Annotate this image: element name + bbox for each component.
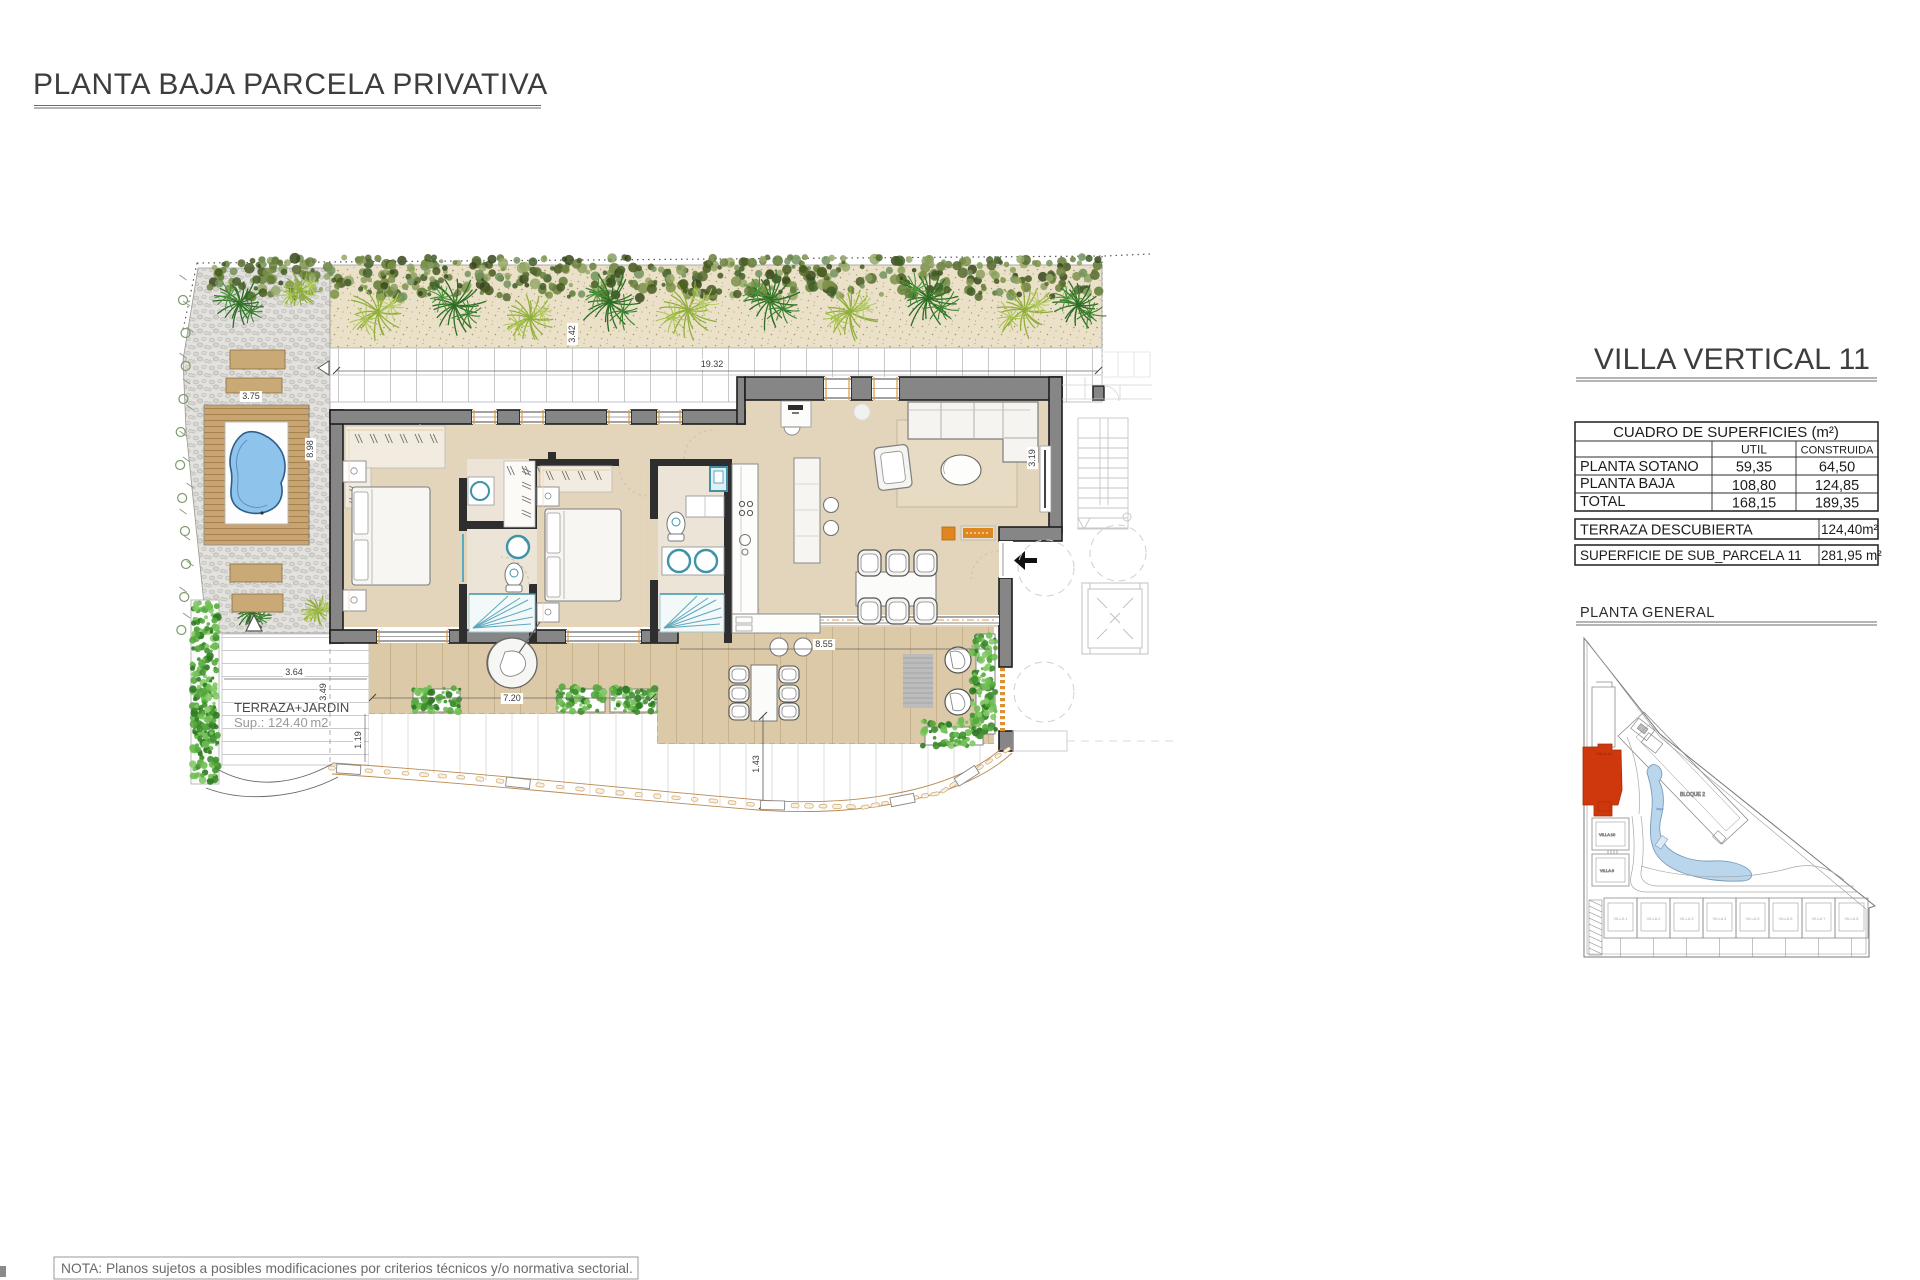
svg-text:3.64: 3.64 — [285, 667, 303, 677]
svg-text:Sup.: 124.40 m2: Sup.: 124.40 m2 — [234, 715, 328, 730]
svg-text:7.20: 7.20 — [503, 693, 521, 703]
svg-text:124,40m²: 124,40m² — [1821, 522, 1879, 537]
svg-text:8.98: 8.98 — [305, 440, 315, 458]
svg-text:189,35: 189,35 — [1815, 496, 1859, 512]
svg-text:PLANTA BAJA: PLANTA BAJA — [1580, 476, 1675, 492]
svg-text:19.32: 19.32 — [701, 359, 724, 369]
svg-text:VILLA 7: VILLA 7 — [1811, 916, 1826, 921]
svg-text:PLANTA BAJA PARCELA PRIVATIVA: PLANTA BAJA PARCELA PRIVATIVA — [33, 68, 548, 101]
svg-text:3.42: 3.42 — [567, 325, 577, 343]
svg-text:VILLA 2: VILLA 2 — [1646, 916, 1661, 921]
svg-text:3.75: 3.75 — [242, 391, 260, 401]
svg-text:VILLA 4: VILLA 4 — [1712, 916, 1727, 921]
svg-text:VILLA 3: VILLA 3 — [1679, 916, 1694, 921]
svg-text:PLANTA GENERAL: PLANTA GENERAL — [1580, 605, 1715, 621]
svg-text:VILLA 8: VILLA 8 — [1844, 916, 1859, 921]
svg-text:281,95 m²: 281,95 m² — [1821, 548, 1882, 563]
svg-text:NOTA: Planos sujetos a posible: NOTA: Planos sujetos a posibles modifica… — [61, 1261, 633, 1276]
svg-text:BLOQUE 2: BLOQUE 2 — [1680, 792, 1705, 798]
svg-text:SUPERFICIE DE SUB_PARCELA 11: SUPERFICIE DE SUB_PARCELA 11 — [1580, 548, 1802, 563]
svg-text:64,50: 64,50 — [1819, 460, 1855, 476]
svg-text:VILLA 11: VILLA 11 — [1596, 751, 1613, 756]
svg-text:59,35: 59,35 — [1736, 460, 1772, 476]
svg-text:3.19: 3.19 — [1027, 449, 1037, 467]
svg-text:1.43: 1.43 — [751, 755, 761, 773]
svg-text:168,15: 168,15 — [1732, 496, 1776, 512]
svg-text:VILLA 6: VILLA 6 — [1778, 916, 1793, 921]
svg-text:TERRAZA+JARDIN: TERRAZA+JARDIN — [234, 700, 349, 715]
svg-text:VILLA 5: VILLA 5 — [1745, 916, 1760, 921]
svg-text:VILLA 10: VILLA 10 — [1599, 832, 1616, 837]
svg-text:UTIL: UTIL — [1741, 443, 1767, 457]
svg-text:CONSTRUIDA: CONSTRUIDA — [1801, 445, 1874, 457]
svg-text:8.55: 8.55 — [815, 639, 833, 649]
svg-text:CUADRO DE SUPERFICIES (m²): CUADRO DE SUPERFICIES (m²) — [1613, 424, 1839, 441]
svg-text:TOTAL: TOTAL — [1580, 494, 1625, 510]
svg-text:1.19: 1.19 — [353, 731, 363, 749]
svg-text:VILLA 1: VILLA 1 — [1613, 916, 1628, 921]
svg-text:3.49: 3.49 — [318, 683, 328, 701]
svg-text:PLANTA SOTANO: PLANTA SOTANO — [1580, 459, 1699, 475]
svg-text:lago: lago — [1656, 806, 1664, 811]
svg-text:VILLA VERTICAL 11: VILLA VERTICAL 11 — [1594, 343, 1870, 376]
svg-text:124,85: 124,85 — [1815, 478, 1859, 494]
svg-text:VILLA 9: VILLA 9 — [1600, 868, 1615, 873]
svg-text:TERRAZA DESCUBIERTA: TERRAZA DESCUBIERTA — [1580, 523, 1753, 539]
svg-text:108,80: 108,80 — [1732, 478, 1776, 494]
